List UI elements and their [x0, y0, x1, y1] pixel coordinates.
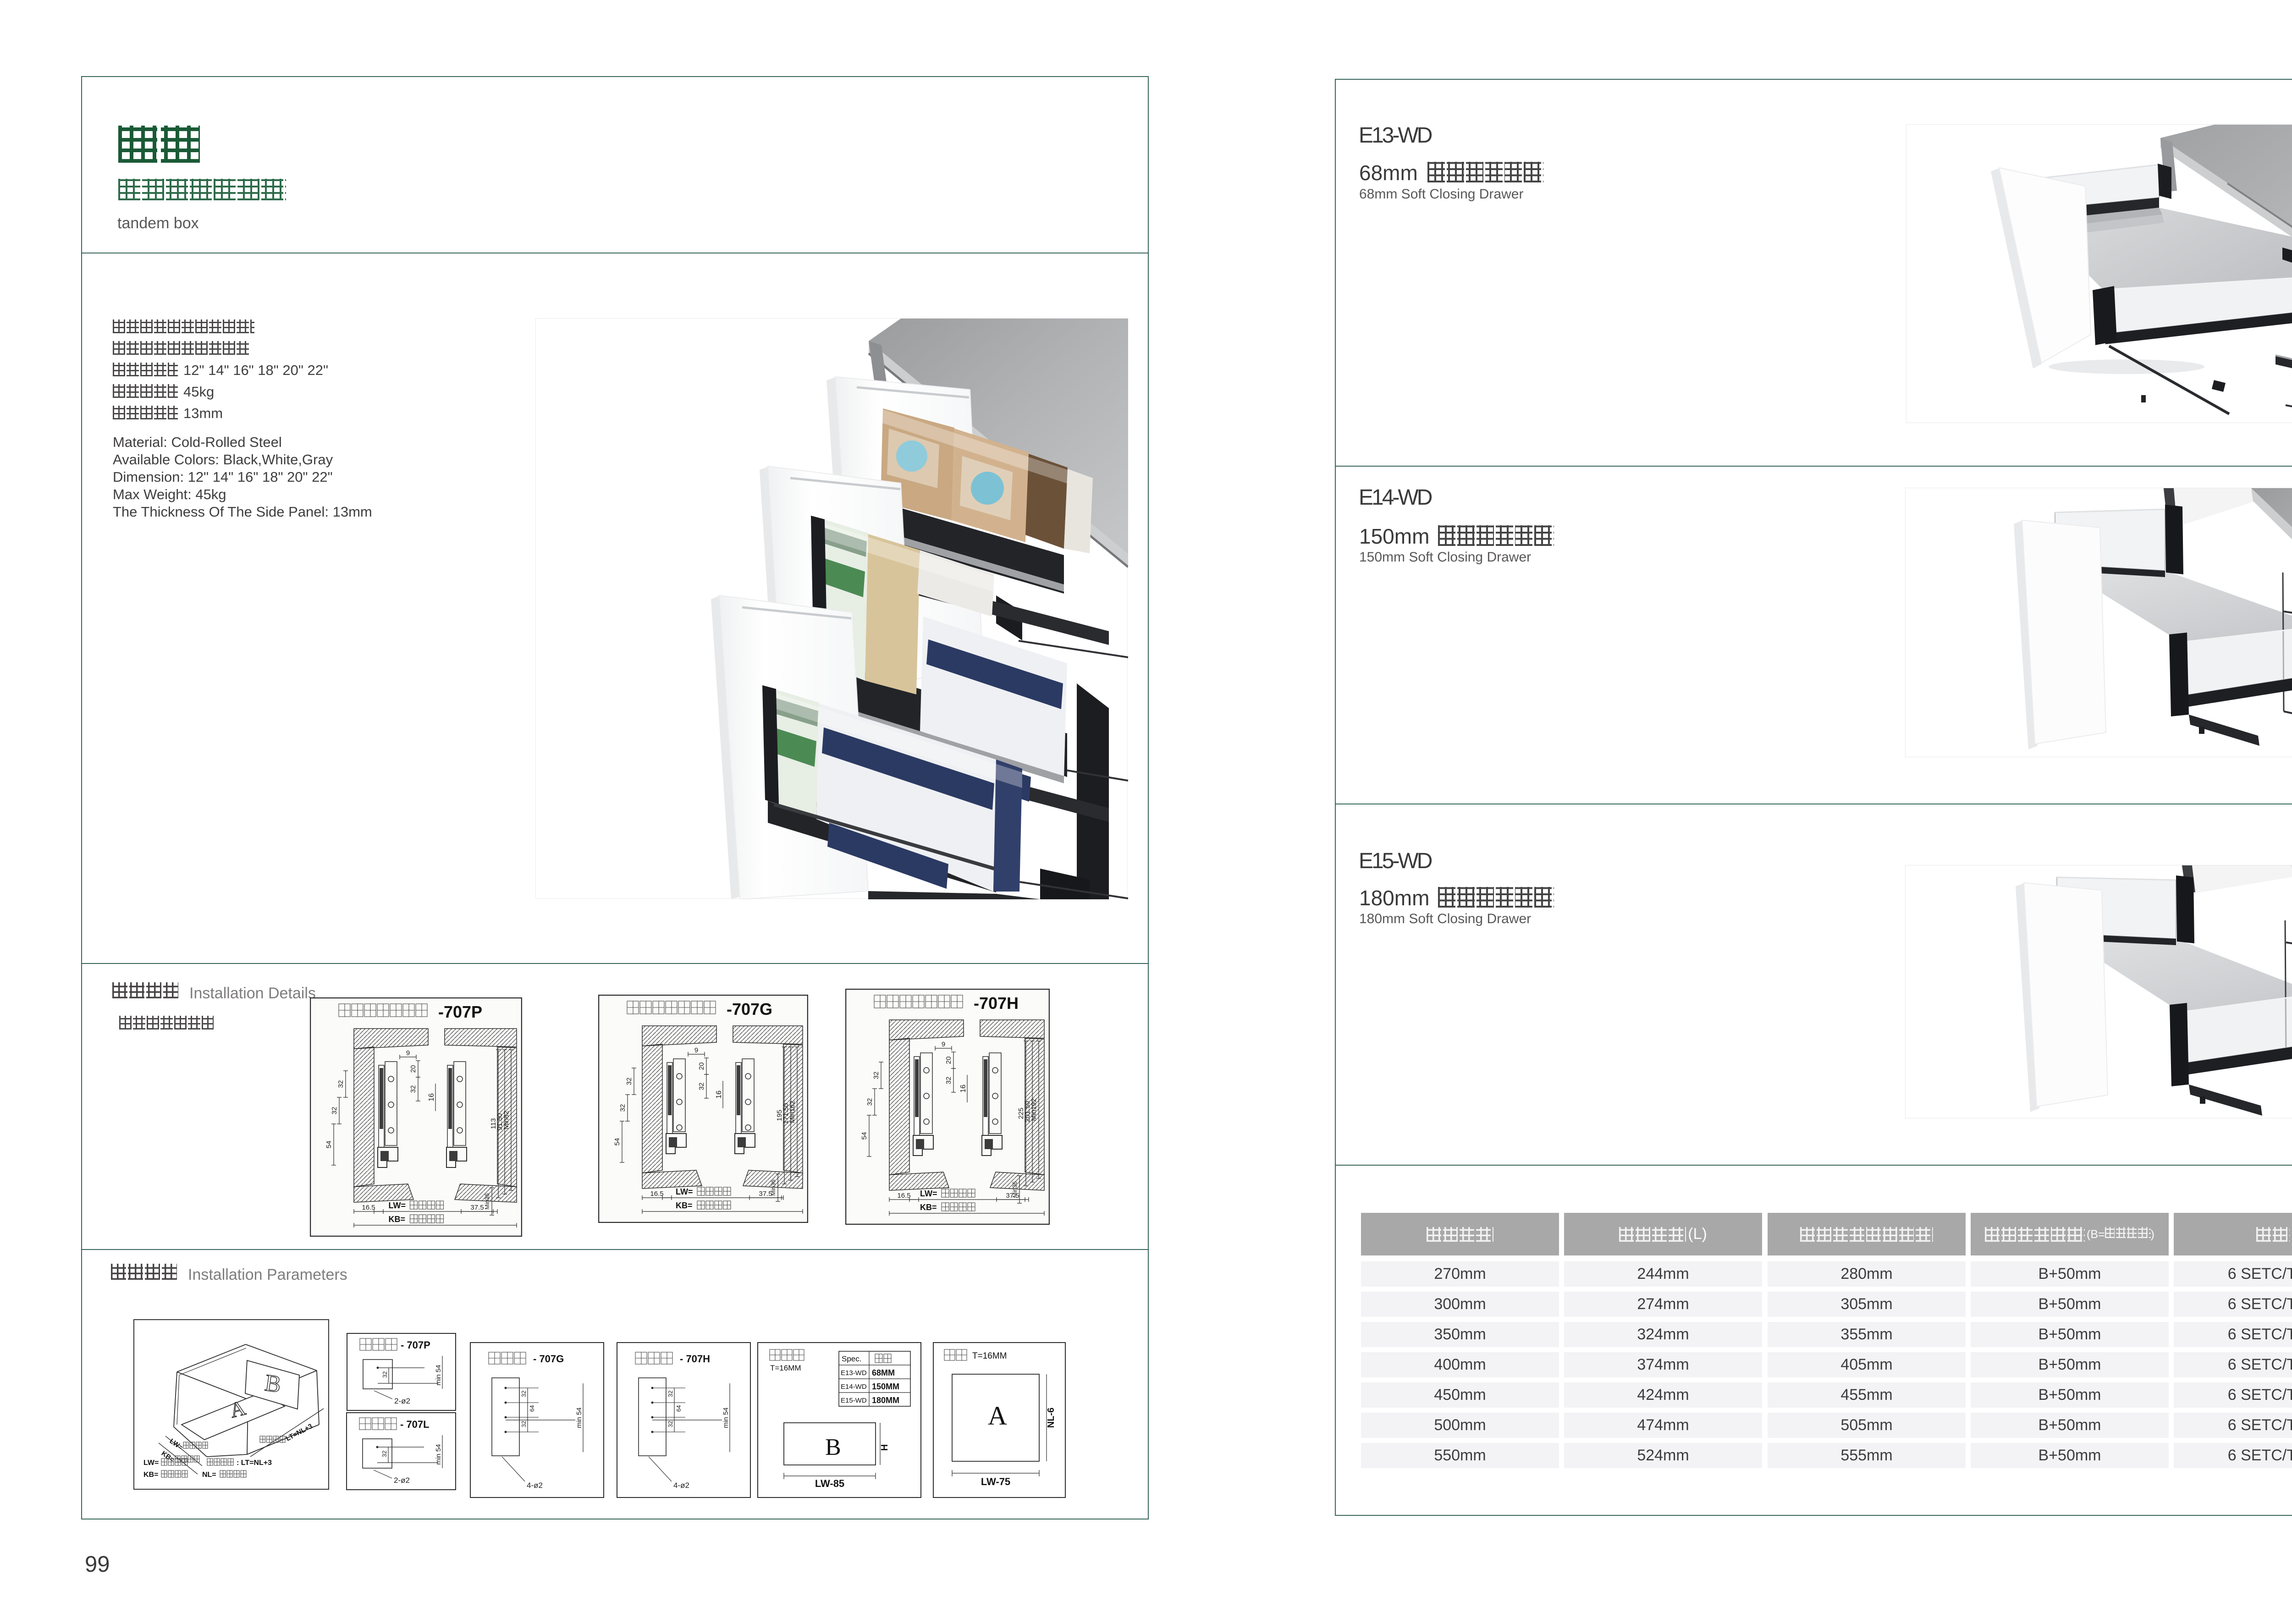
svg-text:min 54: min 54	[575, 1407, 583, 1428]
svg-text:KB=: KB=	[389, 1215, 406, 1224]
svg-text:: LT=NL+3: : LT=NL+3	[237, 1459, 272, 1467]
svg-text:32: 32	[872, 1072, 880, 1079]
svg-text:NL=: NL=	[202, 1471, 216, 1479]
svg-text:Min36: Min36	[770, 1179, 777, 1195]
svg-text:KB=: KB=	[920, 1203, 937, 1212]
svg-text:2-ø2: 2-ø2	[394, 1397, 410, 1405]
svg-text:- 707G: - 707G	[533, 1353, 564, 1365]
svg-text:Spec.: Spec.	[842, 1354, 861, 1363]
svg-text:32: 32	[331, 1107, 338, 1115]
svg-text:H: H	[880, 1444, 890, 1451]
svg-text:NL-6: NL-6	[1046, 1408, 1056, 1428]
svg-text:2-ø2: 2-ø2	[394, 1476, 410, 1485]
svg-text:4-ø2: 4-ø2	[527, 1481, 543, 1490]
svg-text:- 707P: - 707P	[401, 1339, 430, 1351]
svg-text:32: 32	[625, 1078, 633, 1085]
svg-text:37.5: 37.5	[470, 1204, 484, 1211]
svg-text:9: 9	[694, 1046, 698, 1054]
svg-text:180MM: 180MM	[872, 1396, 899, 1405]
svg-text:32: 32	[520, 1421, 527, 1427]
svg-text:-707H: -707H	[974, 994, 1019, 1013]
svg-text:68MM: 68MM	[872, 1368, 895, 1377]
svg-text:KB=: KB=	[676, 1201, 693, 1210]
svg-text:16: 16	[959, 1085, 967, 1093]
svg-text:B: B	[825, 1434, 841, 1460]
svg-text:-707G: -707G	[727, 1000, 772, 1018]
svg-text:32: 32	[337, 1080, 345, 1088]
svg-text:195: 195	[776, 1110, 783, 1121]
svg-text:T=16MM: T=16MM	[770, 1364, 801, 1372]
svg-text:54: 54	[613, 1138, 621, 1146]
svg-text:E14-WD: E14-WD	[841, 1383, 867, 1391]
svg-text:32: 32	[409, 1085, 417, 1093]
svg-text:113: 113	[490, 1118, 497, 1129]
svg-text:16: 16	[428, 1093, 435, 1101]
svg-text:32: 32	[866, 1098, 874, 1106]
svg-text:32: 32	[619, 1104, 627, 1112]
svg-text:T=16MM: T=16MM	[972, 1351, 1007, 1361]
svg-text:32: 32	[667, 1391, 674, 1397]
svg-text:32: 32	[381, 1451, 388, 1457]
svg-text:150MM: 150MM	[872, 1382, 899, 1391]
svg-text:16.5: 16.5	[650, 1190, 663, 1198]
svg-text:LW=: LW=	[920, 1189, 937, 1198]
svg-text:LW-75: LW-75	[981, 1476, 1010, 1487]
svg-text:E13-WD: E13-WD	[841, 1369, 867, 1377]
svg-text:A: A	[988, 1401, 1007, 1431]
svg-text:16: 16	[715, 1090, 723, 1099]
svg-text:E15-WD: E15-WD	[841, 1397, 867, 1404]
svg-text:32: 32	[520, 1391, 527, 1397]
svg-text:20: 20	[698, 1062, 705, 1070]
svg-text:20: 20	[945, 1057, 953, 1064]
svg-text:54: 54	[325, 1141, 333, 1149]
svg-text:4-ø2: 4-ø2	[673, 1481, 689, 1490]
svg-text:Min36: Min36	[484, 1193, 490, 1209]
svg-text:KB=: KB=	[143, 1471, 158, 1479]
svg-text:16.5: 16.5	[897, 1192, 910, 1200]
svg-text:32: 32	[698, 1083, 705, 1090]
svg-text:64: 64	[675, 1405, 682, 1412]
svg-text:20: 20	[409, 1065, 417, 1073]
svg-text:min 54: min 54	[435, 1444, 442, 1464]
svg-text:64: 64	[529, 1405, 535, 1412]
svg-text:LW=: LW=	[389, 1201, 406, 1210]
svg-text:32: 32	[667, 1421, 674, 1427]
svg-text:Min36: Min36	[1011, 1181, 1018, 1197]
svg-text:LW=: LW=	[676, 1187, 693, 1196]
svg-text:16.5: 16.5	[362, 1204, 375, 1211]
svg-text:54: 54	[860, 1132, 868, 1140]
svg-text:32: 32	[945, 1077, 953, 1085]
svg-text:9: 9	[406, 1049, 410, 1057]
svg-text:min 54: min 54	[722, 1407, 730, 1428]
svg-text:- 707L: - 707L	[400, 1419, 430, 1430]
svg-text:-707P: -707P	[438, 1002, 482, 1021]
svg-text:225: 225	[1017, 1107, 1025, 1119]
svg-text:32: 32	[381, 1371, 388, 1378]
svg-text:9: 9	[942, 1040, 945, 1048]
svg-text:LW=: LW=	[143, 1459, 159, 1467]
svg-text:min 54: min 54	[435, 1365, 442, 1385]
svg-text:- 707H: - 707H	[680, 1353, 710, 1365]
svg-text:LW-85: LW-85	[815, 1478, 844, 1489]
